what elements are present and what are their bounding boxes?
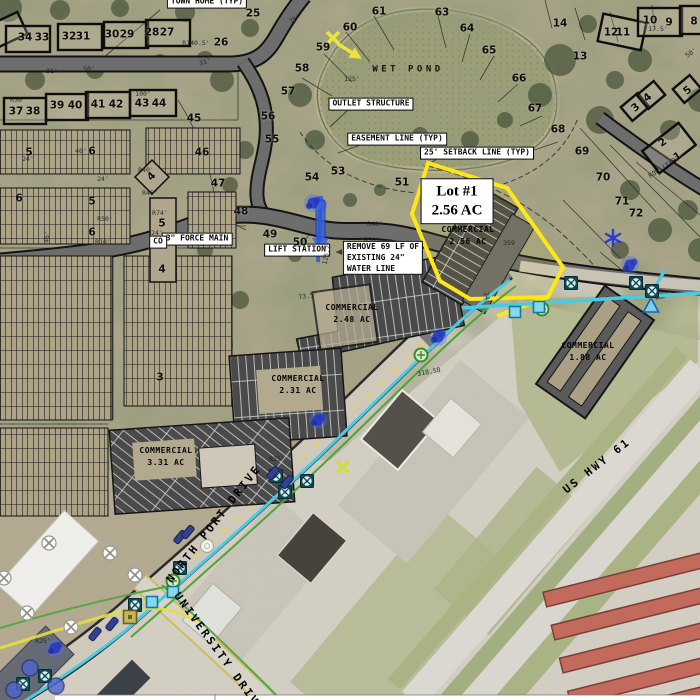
dimension-label: 31' (198, 56, 212, 67)
lot-number: 4 (158, 263, 165, 276)
dimension-label: 46' (75, 147, 87, 155)
lot-number: 44 (152, 97, 167, 110)
lot-number: 60 (343, 21, 358, 34)
dimension-label: R140.5' (182, 39, 209, 47)
dimension-label: R50' (97, 215, 113, 223)
dimension-label: R25' (35, 637, 51, 645)
lot-number: 57 (281, 85, 296, 98)
lot-number: 37 (9, 105, 24, 118)
lot-number: 3 (629, 101, 643, 116)
dimension-label: R50' (364, 236, 380, 244)
lot-number: 32 (62, 30, 77, 43)
lot-number: 48 (234, 205, 249, 218)
callout-label: TOWN HOME (TYP) (167, 0, 247, 8)
commercial-site-label: COMMERCIAL 3.31 AC (139, 445, 192, 469)
lot-number: 67 (528, 102, 543, 115)
dimension-label: 17.5' (648, 25, 668, 33)
lot-number: 47 (211, 177, 226, 190)
lot-number: 30 (105, 28, 120, 41)
lot-number: 43 (135, 97, 150, 110)
labels-layer: Lot #1 2.56 AC TOWN HOME (TYP)OUTLET STR… (0, 0, 700, 700)
commercial-site-label: COMMERCIAL 1.88 AC (561, 340, 614, 364)
lot-number: 42 (109, 98, 124, 111)
lot-number: 51 (395, 176, 410, 189)
dimension-label: R45' (142, 189, 158, 197)
lot-number: 2 (656, 136, 670, 151)
lot-number: 65 (482, 44, 497, 57)
callout-label: CO (149, 236, 167, 249)
lot-number: 5 (681, 84, 695, 99)
lot1-title: Lot #1 (432, 182, 483, 201)
dimension-label: 24' (97, 175, 109, 183)
lot-number: 45 (187, 112, 202, 125)
commercial-site-label: COMMERCIAL 2.31 AC (271, 373, 324, 397)
lot-number: 4 (641, 91, 655, 106)
lot-number: 49 (263, 228, 278, 241)
dimension-label: R74' (152, 209, 168, 217)
lot-number: 58 (295, 62, 310, 75)
lot-number: 54 (305, 171, 320, 184)
lot-number: 39 (50, 99, 65, 112)
dimension-label: 359 (503, 239, 515, 247)
lot-number: 56 (261, 110, 276, 123)
dimension-label: R10' (95, 238, 111, 246)
lot-number: 28 (145, 26, 160, 39)
dimension-label: 50' (83, 65, 95, 73)
dimension-label: R50' (10, 96, 26, 104)
lot-number: 38 (26, 105, 41, 118)
dimension-label: 24' (482, 291, 492, 304)
lot-number: 6 (88, 145, 95, 158)
lot-number: 29 (120, 28, 135, 41)
callout-label: 25' SETBACK LINE (TYP) (420, 147, 534, 160)
lot-number: 34 (18, 31, 33, 44)
lot-number: 72 (629, 207, 644, 220)
dimension-label: 46' (42, 231, 51, 243)
commercial-site-label: COMMERCIAL 2.48 AC (325, 302, 378, 326)
lot-number: 55 (265, 133, 280, 146)
lot-number: 26 (214, 36, 229, 49)
lot-number: 70 (596, 171, 611, 184)
area-label: WET POND (372, 64, 443, 75)
lot-number: 41 (91, 98, 106, 111)
dimension-label: 50' (684, 46, 698, 59)
street-label: UNIVERSITY DRIVE (171, 590, 268, 700)
dimension-label: 75' (288, 12, 302, 25)
lot-number: 66 (512, 72, 527, 85)
dimension-label: R40' (367, 220, 383, 228)
lot-number: 31 (76, 30, 91, 43)
dimension-label: R25' (269, 455, 285, 463)
street-label: NORTH PORT DRIVE (164, 462, 265, 585)
dimension-label: 24' (151, 229, 163, 237)
dimension-label: 73.5' (298, 291, 319, 302)
lot-number: 53 (331, 165, 346, 178)
callout-label: OUTLET STRUCTURE (328, 98, 413, 111)
dimension-label: 100' (135, 90, 151, 98)
lot-number: 11 (616, 26, 631, 39)
lot-number: 14 (553, 17, 568, 30)
lot-number: 27 (160, 26, 175, 39)
dimension-label: ROW (TYP) (647, 154, 681, 180)
commercial-site-label: COMMERCIAL 2.56 AC (441, 224, 494, 248)
lot1-acreage: 2.56 AC (432, 201, 483, 220)
lot-number: 5 (88, 195, 95, 208)
lot-number: 61 (372, 5, 387, 18)
lot-number: 40 (68, 99, 83, 112)
callout-label: REMOVE 69 LF OF EXISTING 24" WATER LINE (343, 241, 423, 275)
lot-number: 33 (35, 31, 50, 44)
lot-number: 50 (293, 236, 308, 249)
lot-number: 46 (195, 146, 210, 159)
dimension-label: 24' (22, 155, 34, 163)
lot-number: 6 (15, 192, 22, 205)
lot-number: 25 (246, 7, 261, 20)
lot1-area-callout: Lot #1 2.56 AC (421, 178, 494, 224)
lot-number: 13 (573, 50, 588, 63)
lot-number: 71 (615, 195, 630, 208)
lot-number: 69 (575, 145, 590, 158)
lot-number: 64 (460, 22, 475, 35)
site-plan-map: Lot #1 2.56 AC TOWN HOME (TYP)OUTLET STR… (0, 0, 700, 700)
street-label: US HWY 61 (560, 435, 633, 496)
dimension-label: R40' (138, 166, 154, 174)
dimension-label: 31' (46, 67, 58, 75)
lot-number: 63 (435, 6, 450, 19)
lot-number: 59 (316, 41, 331, 54)
callout-label: 3" FORCE MAIN (162, 233, 233, 246)
callout-label: EASEMENT LINE (TYP) (347, 133, 447, 146)
dimension-label: 125' (344, 75, 360, 83)
lot-number: 8 (690, 15, 697, 28)
dimension-label: 318.58 (417, 366, 442, 378)
lot-number: 3 (156, 371, 163, 384)
lot-number: 68 (551, 123, 566, 136)
